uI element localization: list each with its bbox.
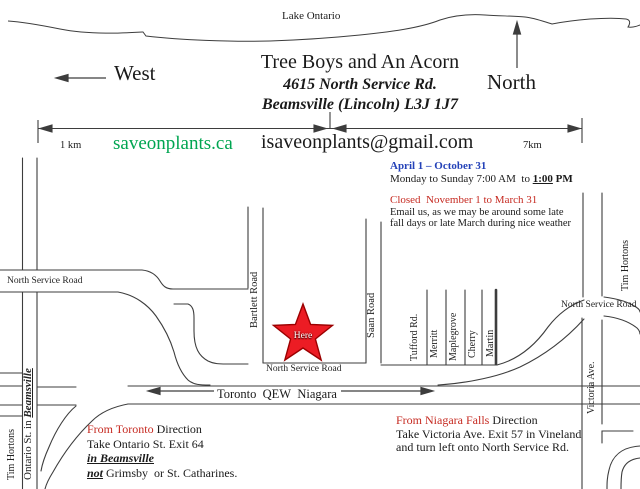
- martin-road-label: Martin: [486, 330, 496, 357]
- ontario-street-prefix: Ontario St. in: [22, 418, 34, 480]
- season-closed-label: Closed November 1 to March 31: [390, 194, 537, 206]
- tufford-road-label: Tufford Rd.: [410, 314, 420, 361]
- road-se-arc2: [621, 458, 640, 489]
- business-address: 4615 North Service Rd.: [210, 76, 510, 94]
- road-nsr-connector: [174, 304, 248, 364]
- website-link[interactable]: saveonplants.ca: [113, 133, 233, 154]
- niagara-from: From Niagara Falls: [396, 413, 489, 427]
- scale-right-value: 7km: [523, 140, 542, 152]
- north-arrow-icon: [514, 22, 521, 68]
- road-se-corner: [602, 431, 633, 443]
- toronto-line4: not Grimsby or St. Catharines.: [87, 466, 237, 481]
- niagara-direction: Direction: [489, 413, 537, 427]
- west-arrow-icon: [56, 75, 106, 82]
- saan-road-label: Saan Road: [367, 293, 378, 338]
- email-link[interactable]: isaveonplants@gmail.com: [261, 131, 473, 153]
- directions-toronto: From Toronto Direction Take Ontario St. …: [87, 422, 237, 480]
- cherry-road-label: Cherry: [468, 330, 478, 358]
- open-hours-line: Monday to Sunday 7:00 AM to 1:00 PM: [390, 173, 573, 185]
- toronto-not-rest: Grimsby or St. Catharines.: [103, 466, 237, 480]
- road-saan: [366, 219, 381, 363]
- ontario-street-city: Beamsville: [22, 368, 34, 418]
- toronto-line2: Take Ontario St. Exit 64: [87, 437, 237, 452]
- map-flyer: Lake Ontario West North Tree Boys and An…: [0, 0, 640, 489]
- qew-eastbound-arrow-icon: [341, 388, 433, 395]
- niagara-line2: Take Victoria Ave. Exit 57 in Vineland: [396, 428, 581, 442]
- nsr-east-label: North Service Road: [561, 300, 636, 311]
- niagara-line3: and turn left onto North Service Rd.: [396, 441, 581, 455]
- toronto-line1: From Toronto Direction: [87, 422, 237, 437]
- toronto-line3: in Beamsville: [87, 451, 237, 466]
- maplegrove-road-label: Maplegrove: [449, 313, 459, 361]
- nsr-center-label: North Service Road: [266, 364, 341, 375]
- tim-hortons-right-label: Tim Hortons: [621, 240, 631, 291]
- closed-note-line2: fall days or late March during nice weat…: [390, 218, 571, 230]
- ontario-street-label: Ontario St. in Beamsville: [23, 368, 34, 480]
- season-open-label: April 1 – October 31: [390, 160, 486, 172]
- toronto-direction: Direction: [154, 422, 202, 436]
- road-sw-ramp-inner: [41, 406, 76, 471]
- road-victoria-north: [583, 193, 602, 297]
- business-city: Beamsville (Lincoln) L3J 1J7: [210, 96, 510, 114]
- qew-westbound-arrow-icon: [148, 388, 214, 395]
- road-qew-top: [37, 386, 640, 387]
- toronto-from: From Toronto: [87, 422, 154, 436]
- bartlett-road-label: Bartlett Road: [250, 272, 261, 328]
- lake-ontario-label: Lake Ontario: [282, 10, 340, 22]
- open-hours-ampm: PM: [553, 173, 573, 185]
- open-hours-time: 1:00: [533, 173, 553, 185]
- closed-note-line1: Email us, as we may be around some late: [390, 207, 564, 219]
- open-hours-prefix: Monday to Sunday 7:00 AM to: [390, 173, 533, 185]
- business-title: Tree Boys and An Acorn: [210, 51, 510, 73]
- victoria-ave-label: Victoria Ave.: [587, 361, 597, 414]
- scale-left-value: 1 km: [60, 140, 81, 152]
- merritt-road-label: Merritt: [430, 330, 440, 358]
- road-west-stubs: [0, 373, 22, 416]
- niagara-line1: From Niagara Falls Direction: [396, 414, 581, 428]
- nsr-west-label: North Service Road: [7, 276, 82, 287]
- here-marker-label: Here: [285, 331, 321, 342]
- tim-hortons-left-label: Tim Hortons: [7, 429, 17, 480]
- west-label: West: [114, 62, 155, 86]
- qew-label: Toronto QEW Niagara: [217, 387, 337, 401]
- directions-niagara: From Niagara Falls Direction Take Victor…: [396, 414, 581, 455]
- toronto-not: not: [87, 466, 103, 480]
- road-sweep-lower: [438, 319, 584, 385]
